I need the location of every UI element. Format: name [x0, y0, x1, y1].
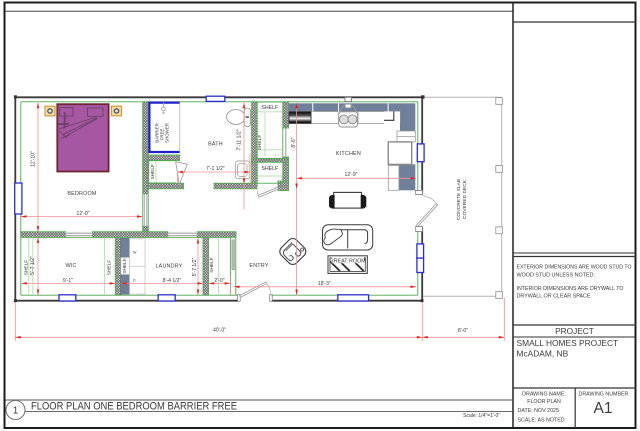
svg-text:2'-0": 2'-0": [214, 278, 224, 284]
svg-text:BARRIERFREE ◦SHOWER: BARRIERFREE ◦SHOWER: [155, 123, 170, 143]
svg-text:SHELF: SHELF: [261, 166, 278, 172]
svg-text:12'-0": 12'-0": [77, 211, 90, 217]
svg-text:8'-0": 8'-0": [458, 328, 468, 334]
svg-text:LAUNDRY: LAUNDRY: [155, 264, 182, 270]
svg-text:EXTERIOR DIMENSIONS ARE WOOD S: EXTERIOR DIMENSIONS ARE WOOD STUD TO: [517, 265, 632, 271]
svg-text:SHELF: SHELF: [150, 164, 156, 180]
svg-text:SMALL HOMES PROJECT: SMALL HOMES PROJECT: [517, 338, 619, 348]
svg-text:DRAWING NAME:: DRAWING NAME:: [522, 392, 566, 398]
svg-text:A1: A1: [594, 400, 613, 417]
svg-text:INTERIOR DIMENSIONS ARE DRYWAL: INTERIOR DIMENSIONS ARE DRYWALL TO: [517, 286, 624, 292]
svg-text:7'-11 1/2": 7'-11 1/2": [236, 129, 242, 150]
svg-text:BATH: BATH: [208, 141, 223, 147]
svg-text:9'-1": 9'-1": [63, 278, 73, 284]
svg-text:SHELF: SHELF: [122, 258, 128, 274]
svg-text:PROJECT: PROJECT: [555, 326, 594, 336]
svg-text:FLOOR PLAN ONE BEDROOM BARRIER: FLOOR PLAN ONE BEDROOM BARRIER FREE: [31, 400, 237, 412]
svg-text:SHELF: SHELF: [261, 105, 278, 111]
svg-text:SHELF: SHELF: [257, 135, 263, 151]
svg-text:SHELF: SHELF: [209, 257, 215, 273]
svg-text:SHELF: SHELF: [23, 260, 29, 276]
svg-text:KITCHEN: KITCHEN: [336, 151, 361, 157]
svg-text:12'-10": 12'-10": [31, 151, 37, 167]
svg-text:D: D: [133, 279, 136, 283]
svg-text:W: W: [133, 251, 137, 255]
svg-text:BEDROOM: BEDROOM: [67, 191, 97, 197]
svg-text:GREAT ROOM: GREAT ROOM: [329, 259, 366, 265]
svg-text:DRAWING NUMBER: DRAWING NUMBER: [579, 392, 629, 398]
svg-text:5'-7 1/2": 5'-7 1/2": [192, 257, 198, 276]
svg-text:Scale: 1/4"=1'-0": Scale: 1/4"=1'-0": [463, 413, 500, 419]
svg-text:FLOOR PLAN: FLOOR PLAN: [527, 399, 561, 405]
svg-text:7'-1 1/2": 7'-1 1/2": [206, 166, 225, 172]
svg-text:WOOD STUD UNLESS NOTED.: WOOD STUD UNLESS NOTED.: [517, 273, 595, 279]
svg-text:40'-0": 40'-0": [213, 328, 226, 334]
svg-text:McADAM, NB: McADAM, NB: [517, 349, 569, 359]
svg-text:SHELF: SHELF: [106, 260, 112, 276]
svg-text:DATE: NOV 2025: DATE: NOV 2025: [518, 408, 559, 414]
svg-text:18'-3": 18'-3": [318, 281, 331, 287]
svg-text:8'-4 1/2": 8'-4 1/2": [163, 278, 182, 284]
svg-text:WIC: WIC: [65, 263, 76, 269]
svg-text:1: 1: [13, 406, 19, 417]
svg-text:DRYWALL OR CLEAR SPACE: DRYWALL OR CLEAR SPACE: [517, 294, 591, 300]
svg-text:8'-6": 8'-6": [291, 137, 297, 147]
svg-text:SCALE: AS NOTED: SCALE: AS NOTED: [518, 418, 565, 424]
svg-text:ENTRY: ENTRY: [249, 263, 268, 269]
svg-text:5'-7 1/2": 5'-7 1/2": [30, 256, 36, 275]
svg-text:12'-9": 12'-9": [345, 172, 358, 178]
